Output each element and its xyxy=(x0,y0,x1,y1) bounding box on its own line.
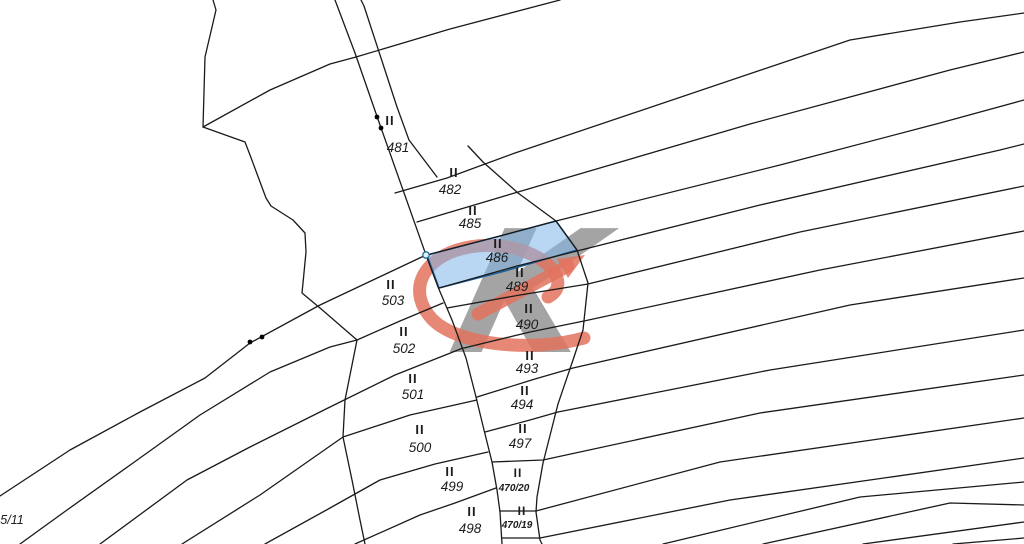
boundary-curve-503-top xyxy=(0,255,426,496)
parcel-culture-marker-502: II xyxy=(399,324,408,339)
parcel-number-494: 494 xyxy=(511,397,534,412)
parcel-label-502[interactable]: II502 xyxy=(393,324,416,356)
map-viewport[interactable]: KII481II482II485II486II489II490II493II49… xyxy=(0,0,1024,544)
parcel-culture-marker-497: II xyxy=(518,421,527,436)
parcel-number-493: 493 xyxy=(516,361,539,376)
parcel-label-482[interactable]: II482 xyxy=(439,165,462,197)
parcel-label-470-19[interactable]: II470/19 xyxy=(501,504,533,531)
parcel-label-498[interactable]: II498 xyxy=(459,504,482,536)
parcel-number-490: 490 xyxy=(516,317,539,332)
boundary-point-dot-icon xyxy=(379,126,384,131)
parcel-number-489: 489 xyxy=(506,279,529,294)
parcel-culture-marker-503: II xyxy=(386,277,395,292)
vertex-circle-icon xyxy=(423,252,429,258)
parcel-culture-marker-490: II xyxy=(524,301,533,316)
parcel-culture-marker-494: II xyxy=(520,383,529,398)
parcel-label-501[interactable]: II501 xyxy=(402,371,425,402)
boundary-boundary-zigzag-lower xyxy=(343,340,365,544)
boundary-bottom-strip-3 xyxy=(863,522,1024,544)
parcel-label-499[interactable]: II499 xyxy=(441,464,464,494)
parcel-label-481[interactable]: II481 xyxy=(385,113,409,155)
boundary-bottom-strip-2 xyxy=(763,503,1024,544)
parcel-culture-marker-501: II xyxy=(408,371,417,386)
parcel-label-497[interactable]: II497 xyxy=(509,421,532,451)
boundary-diagonal-11 xyxy=(500,418,1024,511)
parcel-number-485: 485 xyxy=(459,216,482,231)
boundary-diagonal-10 xyxy=(492,375,1024,462)
parcel-culture-marker-489: II xyxy=(515,265,524,280)
parcel-culture-marker-498: II xyxy=(467,504,476,519)
boundary-diagonal-4 xyxy=(427,100,1024,255)
parcel-number-497: 497 xyxy=(509,436,532,451)
parcel-number-470-20: 470/20 xyxy=(498,483,530,494)
boundary-curve-501-500 xyxy=(182,400,477,544)
boundary-curve-503-502 xyxy=(20,303,443,544)
boundary-diagonal-1 xyxy=(203,0,560,127)
parcel-number-502: 502 xyxy=(393,341,416,356)
parcel-culture-marker-481: II xyxy=(385,113,394,128)
parcel-label-485[interactable]: II485 xyxy=(459,203,482,231)
parcel-label-470-20[interactable]: II470/20 xyxy=(498,466,530,494)
parcel-culture-marker-500: II xyxy=(415,422,424,437)
parcel-culture-marker-470-19: II xyxy=(518,504,527,518)
boundary-boundary-zigzag-upper xyxy=(203,0,357,340)
parcel-number-500: 500 xyxy=(409,440,432,455)
parcel-culture-marker-470-20: II xyxy=(514,466,523,480)
boundary-point-dot-icon xyxy=(375,115,380,120)
parcel-number-470-19: 470/19 xyxy=(501,520,533,531)
boundary-bottom-strip-4 xyxy=(953,538,1024,544)
boundary-diagonal-12 xyxy=(502,458,1024,538)
parcel-number-481: 481 xyxy=(387,140,410,155)
parcel-number-501: 501 xyxy=(402,387,425,402)
parcel-culture-marker-499: II xyxy=(445,464,454,479)
boundary-point-dot-icon xyxy=(260,335,265,340)
boundary-point-dot-icon xyxy=(248,340,253,345)
parcel-number-503: 503 xyxy=(382,293,405,308)
parcel-number-486: 486 xyxy=(486,250,509,265)
parcel-number-edge-5-11: 5/11 xyxy=(0,513,23,527)
parcel-number-499: 499 xyxy=(441,479,464,494)
boundary-bottom-strip-1 xyxy=(663,482,1024,544)
parcel-number-482: 482 xyxy=(439,182,462,197)
parcel-culture-marker-486: II xyxy=(493,236,502,251)
parcel-label-503[interactable]: II503 xyxy=(382,277,405,308)
parcel-number-498: 498 xyxy=(459,521,482,536)
cadastral-map-canvas[interactable]: KII481II482II485II486II489II490II493II49… xyxy=(0,0,1024,544)
parcel-label-500[interactable]: II500 xyxy=(409,422,432,455)
parcel-culture-marker-482: II xyxy=(449,165,458,180)
